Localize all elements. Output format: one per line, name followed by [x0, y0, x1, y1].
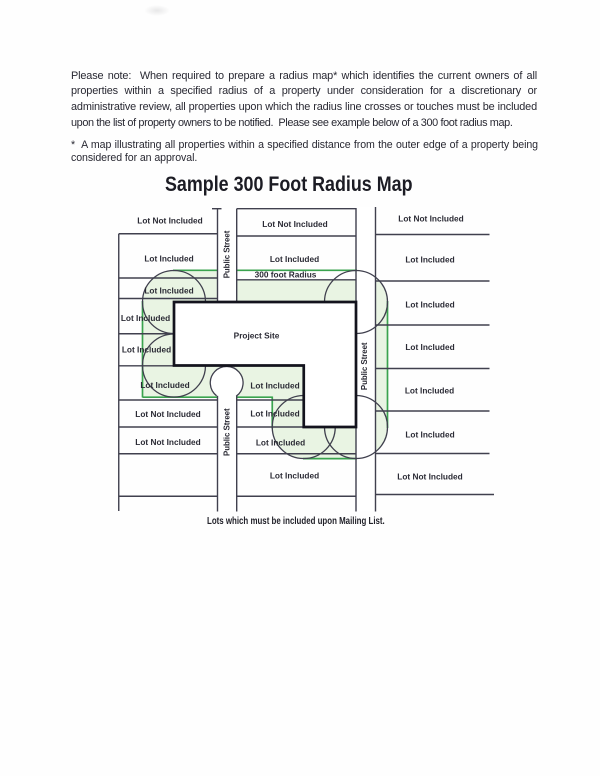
svg-text:Public Street: Public Street: [360, 342, 369, 390]
svg-text:Lot Included: Lot Included: [256, 438, 305, 448]
svg-text:Lot Included: Lot Included: [405, 342, 454, 352]
svg-text:Lot Included: Lot Included: [250, 381, 299, 391]
svg-text:Lot Not Included: Lot Not Included: [398, 214, 463, 224]
svg-text:Lot Included: Lot Included: [405, 430, 454, 440]
svg-text:Lot Included: Lot Included: [122, 345, 171, 355]
svg-text:Lot Included: Lot Included: [144, 286, 193, 296]
svg-text:Lot Included: Lot Included: [140, 380, 189, 390]
svg-text:Lot Included: Lot Included: [270, 254, 319, 264]
svg-text:Lot Included: Lot Included: [144, 254, 193, 264]
svg-text:Public Street: Public Street: [223, 230, 232, 278]
svg-text:Lot Included: Lot Included: [270, 471, 319, 481]
svg-text:Lot Included: Lot Included: [121, 313, 170, 323]
svg-text:Lot Included: Lot Included: [250, 409, 299, 419]
svg-text:Project Site: Project Site: [234, 331, 280, 341]
svg-text:300 foot Radius: 300 foot Radius: [255, 270, 317, 280]
svg-text:Lot Not Included: Lot Not Included: [135, 409, 200, 419]
svg-text:Lot Not Included: Lot Not Included: [135, 437, 200, 447]
svg-text:Lot Not Included: Lot Not Included: [397, 472, 462, 482]
svg-text:Lot Included: Lot Included: [405, 386, 454, 396]
svg-text:Public Street: Public Street: [223, 408, 232, 456]
svg-text:Lot Not Included: Lot Not Included: [137, 216, 202, 226]
svg-text:Lot Included: Lot Included: [405, 300, 454, 310]
svg-text:Lot Included: Lot Included: [405, 255, 454, 265]
svg-text:Lot Not Included: Lot Not Included: [262, 219, 327, 229]
